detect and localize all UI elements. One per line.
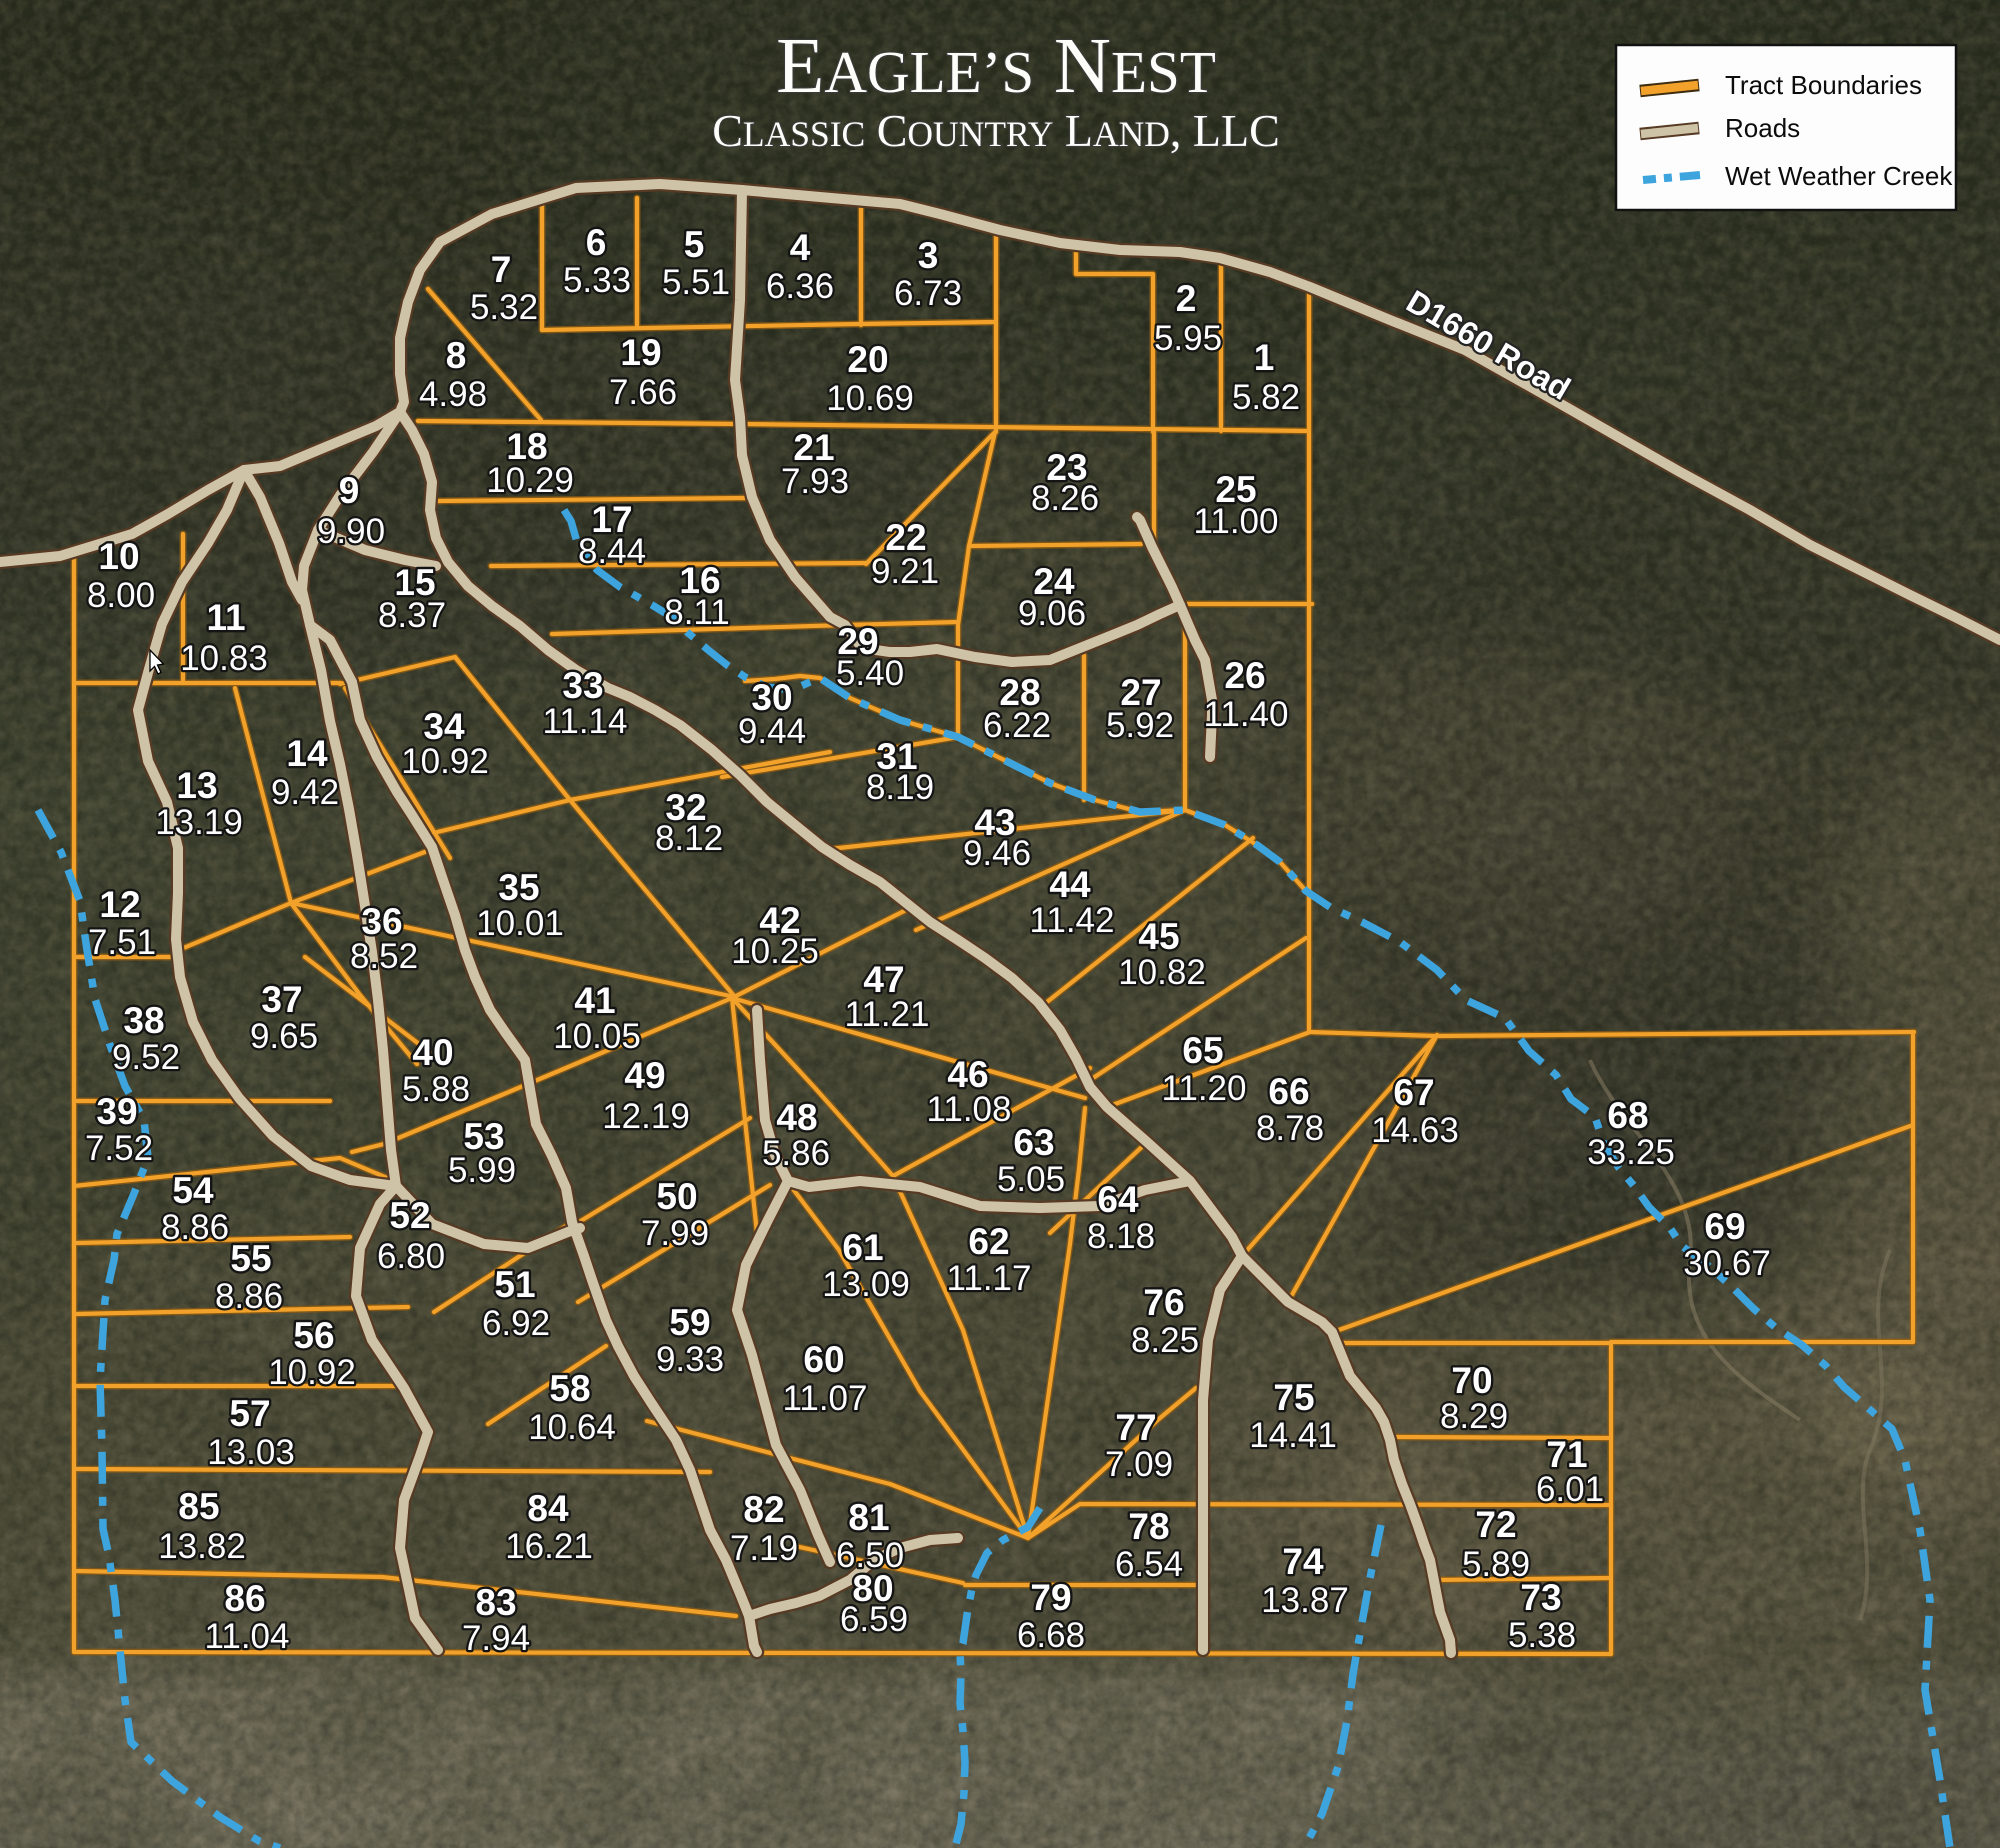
svg-text:11.00: 11.00 bbox=[1194, 502, 1279, 541]
svg-text:13.19: 13.19 bbox=[155, 803, 243, 842]
svg-text:19: 19 bbox=[620, 332, 661, 373]
svg-text:5.86: 5.86 bbox=[762, 1134, 830, 1173]
svg-text:11.21: 11.21 bbox=[845, 995, 930, 1034]
svg-text:16.21: 16.21 bbox=[505, 1527, 593, 1566]
svg-text:78: 78 bbox=[1128, 1506, 1169, 1547]
svg-text:38: 38 bbox=[123, 1000, 164, 1041]
svg-text:8.37: 8.37 bbox=[378, 596, 446, 635]
svg-text:68: 68 bbox=[1607, 1095, 1648, 1136]
svg-text:5.38: 5.38 bbox=[1508, 1616, 1576, 1655]
svg-text:10.82: 10.82 bbox=[1118, 953, 1206, 992]
svg-text:8.44: 8.44 bbox=[578, 532, 646, 571]
svg-text:7.66: 7.66 bbox=[609, 373, 677, 412]
svg-text:5.33: 5.33 bbox=[563, 261, 631, 300]
svg-text:5.92: 5.92 bbox=[1106, 706, 1174, 745]
svg-text:2: 2 bbox=[1176, 278, 1197, 319]
svg-text:10.83: 10.83 bbox=[180, 639, 268, 678]
svg-text:66: 66 bbox=[1268, 1071, 1309, 1112]
svg-text:75: 75 bbox=[1273, 1377, 1314, 1418]
svg-text:62: 62 bbox=[968, 1221, 1009, 1262]
svg-text:67: 67 bbox=[1393, 1072, 1434, 1113]
svg-text:13.09: 13.09 bbox=[822, 1265, 910, 1304]
svg-text:54: 54 bbox=[172, 1170, 214, 1211]
svg-text:Roads: Roads bbox=[1725, 113, 1800, 143]
svg-text:33: 33 bbox=[562, 665, 603, 706]
svg-text:47: 47 bbox=[863, 959, 904, 1000]
svg-text:77: 77 bbox=[1115, 1407, 1156, 1448]
svg-text:Wet Weather Creek: Wet Weather Creek bbox=[1725, 161, 1953, 191]
svg-text:9.65: 9.65 bbox=[250, 1017, 318, 1056]
svg-text:74: 74 bbox=[1282, 1541, 1324, 1582]
svg-text:49: 49 bbox=[624, 1055, 665, 1096]
svg-text:4.98: 4.98 bbox=[419, 375, 487, 414]
svg-text:Tract Boundaries: Tract Boundaries bbox=[1725, 70, 1922, 100]
svg-text:48: 48 bbox=[776, 1097, 817, 1138]
svg-text:57: 57 bbox=[229, 1393, 270, 1434]
svg-text:10: 10 bbox=[98, 536, 139, 577]
svg-text:65: 65 bbox=[1182, 1030, 1223, 1071]
svg-text:5.88: 5.88 bbox=[402, 1070, 470, 1109]
svg-text:13.82: 13.82 bbox=[158, 1527, 246, 1566]
svg-text:9.46: 9.46 bbox=[963, 834, 1031, 873]
svg-text:9.42: 9.42 bbox=[271, 773, 339, 812]
svg-text:10.92: 10.92 bbox=[401, 742, 489, 781]
svg-text:52: 52 bbox=[389, 1195, 430, 1236]
svg-text:1: 1 bbox=[1254, 337, 1275, 378]
svg-text:11.20: 11.20 bbox=[1162, 1069, 1247, 1108]
svg-text:11.17: 11.17 bbox=[947, 1259, 1032, 1298]
svg-text:11.08: 11.08 bbox=[927, 1090, 1012, 1129]
svg-text:5.95: 5.95 bbox=[1154, 319, 1222, 358]
svg-text:5.51: 5.51 bbox=[662, 263, 730, 302]
svg-text:6.59: 6.59 bbox=[840, 1600, 908, 1639]
svg-text:33.25: 33.25 bbox=[1587, 1133, 1675, 1172]
svg-text:51: 51 bbox=[494, 1264, 535, 1305]
svg-text:6.73: 6.73 bbox=[894, 274, 962, 313]
svg-text:9.90: 9.90 bbox=[317, 512, 385, 551]
svg-text:8.29: 8.29 bbox=[1440, 1397, 1508, 1436]
svg-text:9.06: 9.06 bbox=[1018, 594, 1086, 633]
svg-text:6.36: 6.36 bbox=[766, 267, 834, 306]
svg-text:14.63: 14.63 bbox=[1371, 1111, 1459, 1150]
svg-text:13.87: 13.87 bbox=[1261, 1581, 1349, 1620]
svg-text:46: 46 bbox=[947, 1054, 988, 1095]
svg-text:5.82: 5.82 bbox=[1232, 378, 1300, 417]
svg-text:10.69: 10.69 bbox=[826, 379, 914, 418]
svg-text:37: 37 bbox=[261, 979, 302, 1020]
svg-text:44: 44 bbox=[1049, 864, 1091, 905]
svg-text:35: 35 bbox=[498, 867, 539, 908]
svg-text:10.05: 10.05 bbox=[553, 1017, 641, 1056]
svg-text:7.51: 7.51 bbox=[88, 923, 156, 962]
svg-text:3: 3 bbox=[918, 235, 939, 276]
svg-text:26: 26 bbox=[1224, 655, 1265, 696]
svg-text:11.14: 11.14 bbox=[543, 702, 628, 741]
svg-text:81: 81 bbox=[848, 1497, 889, 1538]
svg-text:6.92: 6.92 bbox=[482, 1304, 550, 1343]
svg-text:72: 72 bbox=[1475, 1504, 1516, 1545]
svg-text:86: 86 bbox=[224, 1578, 265, 1619]
svg-text:7.52: 7.52 bbox=[85, 1129, 153, 1168]
svg-text:12: 12 bbox=[99, 884, 140, 925]
svg-text:8.26: 8.26 bbox=[1031, 479, 1099, 518]
svg-text:8: 8 bbox=[446, 335, 467, 376]
svg-text:40: 40 bbox=[412, 1032, 453, 1073]
svg-text:10.64: 10.64 bbox=[528, 1408, 616, 1447]
svg-text:8.78: 8.78 bbox=[1256, 1109, 1324, 1148]
svg-text:61: 61 bbox=[842, 1227, 883, 1268]
svg-text:55: 55 bbox=[230, 1238, 271, 1279]
svg-text:8.86: 8.86 bbox=[215, 1277, 283, 1316]
svg-text:7.99: 7.99 bbox=[641, 1214, 709, 1253]
svg-text:9: 9 bbox=[339, 470, 360, 511]
svg-text:13: 13 bbox=[176, 765, 217, 806]
svg-text:10.25: 10.25 bbox=[731, 932, 819, 971]
svg-text:6.80: 6.80 bbox=[377, 1237, 445, 1276]
svg-text:7.93: 7.93 bbox=[781, 462, 849, 501]
svg-text:11.04: 11.04 bbox=[205, 1617, 290, 1656]
svg-text:6.54: 6.54 bbox=[1115, 1545, 1183, 1584]
svg-text:7.19: 7.19 bbox=[730, 1529, 798, 1568]
svg-text:14.41: 14.41 bbox=[1249, 1416, 1337, 1455]
svg-text:69: 69 bbox=[1704, 1206, 1745, 1247]
svg-text:70: 70 bbox=[1451, 1360, 1492, 1401]
svg-text:11.07: 11.07 bbox=[783, 1379, 868, 1418]
svg-text:71: 71 bbox=[1546, 1434, 1587, 1475]
svg-text:8.18: 8.18 bbox=[1087, 1217, 1155, 1256]
svg-text:8.00: 8.00 bbox=[87, 576, 155, 615]
svg-text:30.67: 30.67 bbox=[1683, 1244, 1771, 1283]
svg-text:85: 85 bbox=[178, 1486, 219, 1527]
svg-text:63: 63 bbox=[1013, 1122, 1054, 1163]
svg-text:56: 56 bbox=[293, 1315, 334, 1356]
svg-text:73: 73 bbox=[1520, 1577, 1561, 1618]
svg-text:5.05: 5.05 bbox=[997, 1160, 1065, 1199]
svg-text:6.22: 6.22 bbox=[983, 706, 1051, 745]
svg-text:9.52: 9.52 bbox=[112, 1038, 180, 1077]
svg-text:14: 14 bbox=[286, 733, 328, 774]
svg-text:10.29: 10.29 bbox=[486, 461, 574, 500]
svg-text:39: 39 bbox=[96, 1091, 137, 1132]
svg-text:7.09: 7.09 bbox=[1105, 1445, 1173, 1484]
svg-text:9.33: 9.33 bbox=[656, 1340, 724, 1379]
svg-text:60: 60 bbox=[803, 1339, 844, 1380]
svg-text:50: 50 bbox=[656, 1176, 697, 1217]
svg-text:79: 79 bbox=[1030, 1577, 1071, 1618]
svg-text:8.19: 8.19 bbox=[866, 768, 934, 807]
svg-text:8.12: 8.12 bbox=[655, 819, 723, 858]
svg-text:5.99: 5.99 bbox=[448, 1151, 516, 1190]
svg-text:9.44: 9.44 bbox=[738, 712, 806, 751]
svg-text:8.11: 8.11 bbox=[664, 593, 730, 632]
svg-text:6.01: 6.01 bbox=[1536, 1470, 1604, 1509]
svg-text:58: 58 bbox=[549, 1368, 590, 1409]
svg-text:84: 84 bbox=[527, 1488, 569, 1529]
svg-text:5: 5 bbox=[684, 224, 705, 265]
svg-text:36: 36 bbox=[361, 901, 402, 942]
svg-text:8.25: 8.25 bbox=[1131, 1321, 1199, 1360]
svg-text:10.92: 10.92 bbox=[268, 1353, 356, 1392]
svg-text:5.40: 5.40 bbox=[836, 654, 904, 693]
svg-text:41: 41 bbox=[574, 980, 615, 1021]
svg-text:11.42: 11.42 bbox=[1030, 901, 1115, 940]
svg-text:83: 83 bbox=[475, 1582, 516, 1623]
svg-text:9.21: 9.21 bbox=[871, 552, 939, 591]
svg-text:6.68: 6.68 bbox=[1017, 1616, 1085, 1655]
svg-text:8.52: 8.52 bbox=[350, 937, 418, 976]
svg-text:11: 11 bbox=[206, 597, 245, 638]
svg-text:59: 59 bbox=[669, 1302, 710, 1343]
svg-text:8.86: 8.86 bbox=[161, 1208, 229, 1247]
svg-text:5.32: 5.32 bbox=[470, 288, 538, 327]
svg-text:7: 7 bbox=[491, 249, 512, 290]
svg-text:20: 20 bbox=[847, 339, 888, 380]
svg-text:34: 34 bbox=[423, 706, 465, 747]
svg-text:82: 82 bbox=[743, 1489, 784, 1530]
svg-text:12.19: 12.19 bbox=[602, 1097, 690, 1136]
svg-text:6: 6 bbox=[586, 222, 607, 263]
svg-text:76: 76 bbox=[1143, 1282, 1184, 1323]
svg-text:7.94: 7.94 bbox=[462, 1619, 530, 1658]
svg-text:4: 4 bbox=[790, 227, 811, 268]
svg-text:11.40: 11.40 bbox=[1204, 695, 1289, 734]
svg-text:64: 64 bbox=[1097, 1179, 1139, 1220]
svg-text:45: 45 bbox=[1138, 916, 1179, 957]
svg-text:13.03: 13.03 bbox=[207, 1433, 295, 1472]
svg-text:10.01: 10.01 bbox=[476, 904, 564, 943]
svg-text:6.50: 6.50 bbox=[836, 1536, 904, 1575]
